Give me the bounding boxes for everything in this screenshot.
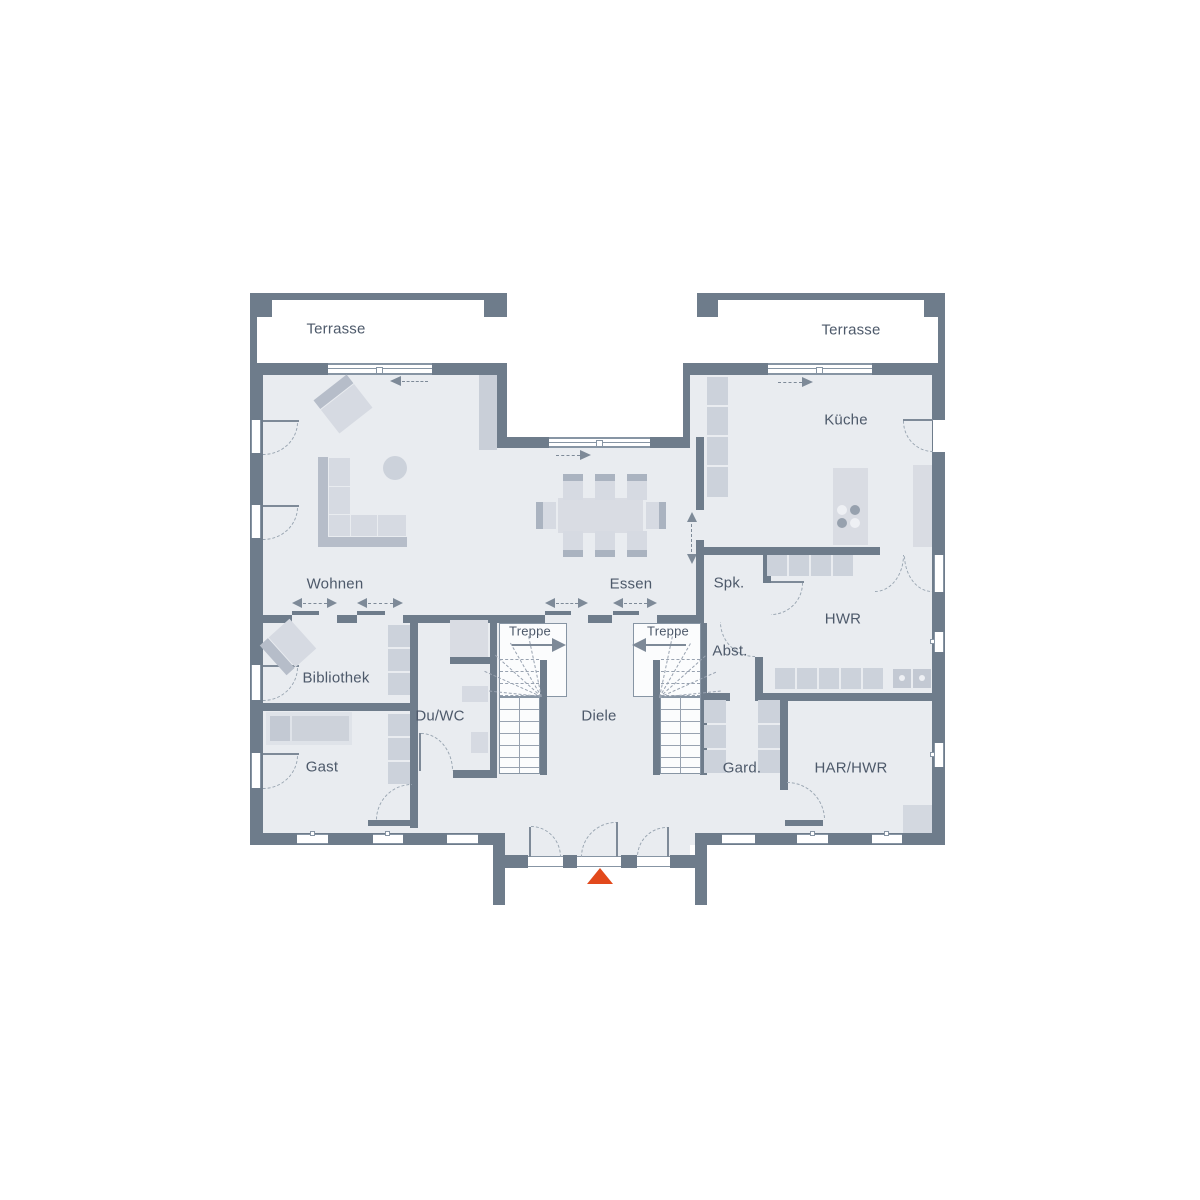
laundry-counter [789,555,809,576]
door-swing-arc [771,583,803,615]
chimney-block [479,375,497,450]
room-label-essen: Essen [610,576,653,593]
shelf [388,649,410,671]
terrace-pillar [484,293,507,317]
coffee-table [383,456,407,480]
door-swing-arc [531,826,561,857]
arrow-left-icon [613,598,623,608]
stair-tread [500,709,539,710]
entry-wall-segment [621,855,637,868]
sofa-backrest [318,537,407,547]
sofa-cushion [329,487,350,514]
recess-wall-right [683,363,690,448]
sliding-door-dash [402,381,428,382]
terrace-wall-right [938,293,945,365]
recess-outside-area [505,355,683,437]
door-opening [933,420,945,452]
sofa-cushion [378,515,406,536]
stair-tread [500,767,539,768]
kitchen-cabinet [707,377,728,405]
stair-direction-arrow [512,644,552,646]
porch-wall-left [493,833,505,905]
sofa-backrest [318,457,328,547]
door-swing-arc [637,827,667,857]
door-swing-arc [263,755,298,789]
washer [893,669,911,688]
sofa-cushion [329,458,350,486]
room-label-gast: Gast [306,759,338,776]
stair-tread [661,767,700,768]
door-swing-arc [875,555,904,592]
room-label-treppe-right: Treppe [647,624,689,639]
arrow-left-icon [632,638,646,652]
window [447,834,478,844]
arrow-right-icon [327,598,337,608]
laundry-counter [811,555,831,576]
laundry-counter [833,555,853,576]
terrace-wall-left [250,293,257,365]
shelf [388,625,410,647]
entry-wall-segment [563,855,577,868]
laundry-counter [863,668,883,689]
arrow-right-icon [578,598,588,608]
stair-tread [661,709,700,710]
sliding-door-dash [556,455,580,456]
shower [450,620,488,657]
toilet [471,732,488,753]
dining-table [558,498,643,533]
interior-wall [780,695,788,790]
stair-tread [500,721,539,722]
dining-chair [563,474,583,500]
room-label-terrasse-right: Terrasse [821,322,880,339]
window [251,420,261,453]
terrace-wall-top [697,293,945,300]
laundry-counter [797,668,817,689]
interior-wall-bibliothek-gast [257,703,412,711]
window-handle-icon [810,831,815,836]
room-label-spk: Spk. [714,575,745,592]
dining-chair [627,474,647,500]
window-handle-icon [884,831,889,836]
laundry-counter [775,668,795,689]
arrow-right-icon [647,598,657,608]
washbasin [462,686,488,702]
door-swing-arc [903,421,933,452]
shower-wall [450,657,497,664]
kitchen-cabinet [707,407,728,435]
door-leaf [785,820,823,826]
sofa-cushion [351,515,377,536]
sliding-door-dash [303,603,327,604]
door-swing-arc [787,782,825,820]
terrace-pillar [697,293,718,317]
sliding-glass-door-essen [549,437,650,448]
wardrobe [704,700,726,723]
room-label-gard: Gard. [723,760,762,777]
shelf [388,738,410,760]
stair-tread [500,745,539,746]
wardrobe [758,700,780,723]
terrace-wall-top [250,293,507,300]
laundry-counter [819,668,839,689]
recess-wall-bottom-right [650,437,690,448]
shelf [388,762,410,784]
room-label-hwr: HWR [825,611,861,628]
door-swing-arc [904,555,932,592]
room-label-treppe-left: Treppe [509,624,551,639]
stair-tread [500,671,539,672]
dining-chair [646,502,666,529]
stair-wall [653,660,660,775]
interior-wall [337,615,357,623]
sliding-door-panel [613,611,639,615]
sofa-cushion [329,515,350,536]
sliding-door-dash [368,603,393,604]
stair-tread [661,757,700,758]
stove-burner [850,505,860,515]
stair-wall [540,660,547,775]
window [251,505,261,538]
stair-tread [661,671,700,672]
recess-wall-left [497,363,507,448]
washer [913,669,931,688]
entry-door-sill [528,856,563,867]
dining-chair [595,474,615,500]
arrow-right-icon [580,450,591,460]
interior-wall [696,437,704,510]
bed-pillow [270,716,290,741]
har-storage-block [903,805,932,833]
interior-wall-kueche-bottom [696,547,880,555]
sliding-glass-door-kueche [768,363,872,375]
wardrobe [758,725,780,748]
shelf [388,714,410,736]
arrow-left-icon [545,598,555,608]
kitchen-counter [913,465,932,547]
dining-chair [563,531,583,557]
shelf [388,673,410,695]
kitchen-cabinet [707,467,728,497]
room-label-wohnen: Wohnen [307,576,364,593]
sliding-door-panel [545,611,571,615]
room-label-kueche: Küche [824,412,868,429]
arrow-left-icon [390,376,401,386]
laundry-counter [841,668,861,689]
stair-tread [661,721,700,722]
room-label-har-hwr: HAR/HWR [814,760,887,777]
arrow-left-icon [292,598,302,608]
stair-direction-arrow [646,644,686,646]
stove-burner [837,518,847,528]
arrow-right-icon [393,598,403,608]
sliding-glass-door-wohnen [328,363,432,375]
interior-wall [588,615,612,623]
door-swing-arc [581,822,616,857]
entrance-marker [587,868,613,884]
window-handle-icon [930,752,935,757]
door-leaf [616,822,618,857]
sliding-door-dash [624,603,647,604]
wardrobe [758,750,780,773]
arrow-up-icon [687,512,697,522]
room-label-terrasse-left: Terrasse [306,321,365,338]
window [934,632,944,652]
sliding-door-panel [357,611,385,615]
door-swing-arc [263,422,298,455]
dining-chair [536,502,556,529]
dining-chair [627,531,647,557]
stair-wall [490,615,497,775]
sliding-door-dash [691,524,692,552]
door-leaf [667,827,669,857]
entry-door-sill [577,856,621,867]
laundry-counter [767,555,787,576]
door-leaf [368,820,412,826]
stove-burner [837,505,847,515]
room-label-abst: Abst. [712,643,747,660]
entry-wall-segment [670,855,695,868]
window-handle-icon [385,831,390,836]
window [251,665,261,700]
window [934,743,944,767]
kitchen-cabinet [707,437,728,465]
stove-burner [850,518,860,528]
window [251,753,261,788]
recess-wall-bottom-left [497,437,549,448]
sliding-door-dash [556,603,578,604]
floorplan-canvas: Terrasse Terrasse Küche Wohnen Essen Spk… [0,0,1200,1200]
bed-mattress [292,716,349,741]
window [934,555,944,592]
door-swing-arc [421,733,453,771]
room-label-duwc: Du/WC [415,708,464,725]
entry-door-sill [637,856,670,867]
stair-tread [661,733,700,734]
arrow-left-icon [357,598,367,608]
dining-chair [595,531,615,557]
stair-tread [500,733,539,734]
door-swing-arc [376,784,412,820]
arrow-right-icon [802,377,813,387]
window-handle-icon [930,639,935,644]
wardrobe [704,725,726,748]
door-swing-arc [263,667,298,701]
sliding-door-panel [292,611,319,615]
entry-wall-segment [505,855,528,868]
room-label-bibliothek: Bibliothek [302,670,369,687]
window [722,834,755,844]
stair-tread [500,757,539,758]
window-handle-icon [310,831,315,836]
sliding-door-dash [778,382,802,383]
door-swing-arc [263,507,298,540]
stair-tread [661,745,700,746]
arrow-right-icon [552,638,566,652]
room-label-diele: Diele [581,708,616,725]
